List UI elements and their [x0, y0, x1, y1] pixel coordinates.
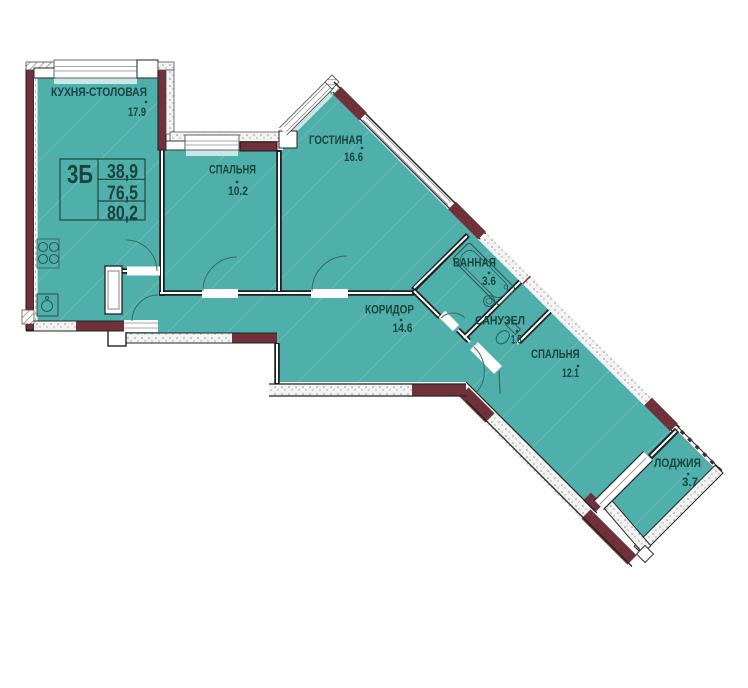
svg-text:17.9: 17.9	[128, 105, 146, 119]
svg-text:38,9: 38,9	[107, 161, 138, 183]
svg-text:ЛОДЖИЯ: ЛОДЖИЯ	[654, 456, 701, 470]
svg-text:12.1: 12.1	[562, 366, 579, 380]
svg-text:10.2: 10.2	[228, 184, 248, 198]
svg-text:ВАННАЯ: ВАННАЯ	[453, 256, 496, 270]
svg-text:1.5: 1.5	[511, 333, 522, 347]
svg-text:80,2: 80,2	[107, 203, 138, 225]
svg-text:16.6: 16.6	[344, 150, 363, 164]
svg-text:КУХНЯ-СТОЛОВАЯ: КУХНЯ-СТОЛОВАЯ	[51, 85, 147, 99]
svg-text:СПАЛЬНЯ: СПАЛЬНЯ	[531, 347, 580, 361]
svg-text:76,5: 76,5	[107, 183, 138, 205]
svg-text:СПАЛЬНЯ: СПАЛЬНЯ	[209, 163, 256, 177]
svg-text:3.7: 3.7	[682, 475, 698, 489]
svg-text:ГОСТИНАЯ: ГОСТИНАЯ	[309, 133, 363, 147]
svg-text:14.6: 14.6	[393, 321, 413, 335]
svg-text:САНУЗЕЛ: САНУЗЕЛ	[475, 314, 525, 328]
svg-text:КОРИДОР: КОРИДОР	[365, 303, 414, 317]
svg-text:3.6: 3.6	[482, 274, 496, 288]
svg-text:3Б: 3Б	[67, 159, 93, 189]
